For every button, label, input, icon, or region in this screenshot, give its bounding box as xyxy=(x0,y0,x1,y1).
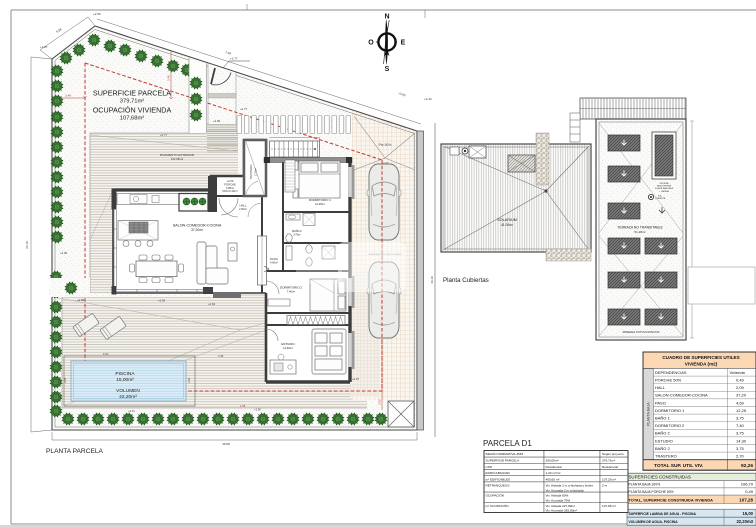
svg-text:7,40: 7,40 xyxy=(736,423,745,428)
svg-text:350,00m²: 350,00m² xyxy=(546,459,559,463)
svg-text:4.38: 4.38 xyxy=(218,354,224,358)
svg-text:BAÑO 2: BAÑO 2 xyxy=(655,431,670,436)
svg-text:N: N xyxy=(384,14,389,21)
svg-text:AEROTERMIA: AEROTERMIA xyxy=(657,185,671,188)
svg-text:+2.99: +2.99 xyxy=(213,119,221,123)
svg-text:CUADRO DE SUPERFICIES UTILES: CUADRO DE SUPERFICIES UTILES xyxy=(662,355,739,360)
svg-text:2 m: 2 m xyxy=(602,484,608,488)
svg-text:4.69m²: 4.69m² xyxy=(270,261,278,265)
svg-text:2.46: 2.46 xyxy=(166,75,170,81)
svg-text:DORMITORIO 1: DORMITORIO 1 xyxy=(309,198,331,202)
svg-text:+2.05: +2.05 xyxy=(60,251,68,255)
svg-text:+2.59: +2.59 xyxy=(227,179,234,183)
svg-text:Pte 50%: Pte 50% xyxy=(379,143,392,147)
svg-text:m² EDIFICABLES: m² EDIFICABLES xyxy=(486,477,511,481)
svg-text:12.25m²: 12.25m² xyxy=(315,202,325,206)
svg-text:+2.77: +2.77 xyxy=(240,107,248,111)
svg-text:16.10: 16.10 xyxy=(430,276,434,284)
svg-text:+2.77: +2.77 xyxy=(230,57,238,61)
svg-text:1,20 m²/m²: 1,20 m²/m² xyxy=(546,471,561,475)
svg-text:41.00m²: 41.00m² xyxy=(501,223,513,227)
svg-text:0,49: 0,49 xyxy=(736,378,745,383)
svg-text:2,09: 2,09 xyxy=(736,385,745,390)
svg-text:Según proyecto: Según proyecto xyxy=(602,452,624,456)
svg-text:B.A.: B.A. xyxy=(658,195,662,198)
svg-text:24.18: 24.18 xyxy=(25,241,29,249)
svg-text:3.00: 3.00 xyxy=(187,377,191,383)
svg-text:14,30: 14,30 xyxy=(736,438,747,443)
svg-text:TRASTERO: TRASTERO xyxy=(249,165,253,180)
svg-text:107,28: 107,28 xyxy=(739,498,753,503)
svg-text:2.09m²: 2.09m² xyxy=(239,207,247,211)
svg-text:50%=0.49m²: 50%=0.49m² xyxy=(222,189,237,193)
svg-text:3,75: 3,75 xyxy=(736,416,745,421)
svg-text:+2.67: +2.67 xyxy=(352,377,360,381)
svg-text:92,26: 92,26 xyxy=(741,463,753,469)
svg-text:PLANTA BAJA 100%: PLANTA BAJA 100% xyxy=(629,483,661,487)
svg-text:PARCELA D1: PARCELA D1 xyxy=(483,439,532,448)
svg-text:SALON-COMEDOR-COCINA: SALON-COMEDOR-COCINA xyxy=(655,393,708,398)
svg-text:2,70: 2,70 xyxy=(736,454,745,459)
svg-text:15,00m²: 15,00m² xyxy=(116,377,134,383)
svg-text:2.46: 2.46 xyxy=(65,94,71,98)
svg-text:TOTAL, SUPERFICIE CONSTRUIDA V: TOTAL, SUPERFICIE CONSTRUIDA VIVIENDA xyxy=(629,498,714,503)
svg-text:4,69: 4,69 xyxy=(736,400,745,405)
svg-text:DEPENDENCIAS: DEPENDENCIAS xyxy=(655,370,687,375)
svg-text:37,20m²: 37,20m² xyxy=(191,228,204,232)
svg-text:SOBRE BANCADA: SOBRE BANCADA xyxy=(655,187,674,190)
svg-text:22,20m3: 22,20m3 xyxy=(736,519,753,524)
svg-text:ESTUDIO: ESTUDIO xyxy=(281,342,295,346)
svg-text:BAÑO 2: BAÑO 2 xyxy=(655,446,670,451)
svg-text:TERRAZA NO TRANSITABLE: TERRAZA NO TRANSITABLE xyxy=(617,226,663,230)
svg-text:USO: USO xyxy=(486,465,493,469)
svg-text:PLANTA BAJA: PLANTA BAJA xyxy=(647,402,651,426)
svg-text:PLANTA BAJA PORCHE 50%: PLANTA BAJA PORCHE 50% xyxy=(629,490,674,494)
svg-text:3.75m²: 3.75m² xyxy=(293,233,301,236)
svg-text:VOLUMEN DE AGUA, PISCINA: VOLUMEN DE AGUA, PISCINA xyxy=(629,520,679,524)
svg-text:SUPERFICIES CONSTRUIDAS: SUPERFICIES CONSTRUIDAS xyxy=(629,475,692,480)
svg-text:0,49: 0,49 xyxy=(745,489,754,494)
svg-text:BAÑO 1: BAÑO 1 xyxy=(655,416,670,421)
svg-text:SEGÚN NORMATIVA-3653: SEGÚN NORMATIVA-3653 xyxy=(486,452,524,456)
svg-text:SALON-COMEDOR-COCINA: SALON-COMEDOR-COCINA xyxy=(173,224,222,228)
svg-text:379,71m²: 379,71m² xyxy=(602,459,615,463)
svg-text:36.88: 36.88 xyxy=(222,442,230,446)
svg-text:+2.77: +2.77 xyxy=(160,133,168,137)
svg-text:22,20m³: 22,20m³ xyxy=(119,394,137,400)
svg-text:Planta Cubiertas: Planta Cubiertas xyxy=(443,277,489,284)
svg-text:TRASTERO: TRASTERO xyxy=(655,454,677,459)
svg-text:+2.59: +2.59 xyxy=(158,299,166,303)
svg-text:Viv. Aislada 60%: Viv. Aislada 60% xyxy=(546,494,569,498)
svg-text:Viv. Acosada 2 m a fachada: Viv. Acosada 2 m a fachada xyxy=(546,488,584,492)
svg-text:VIVIENDA (m2): VIVIENDA (m2) xyxy=(685,362,718,367)
svg-text:107,28 m²: 107,28 m² xyxy=(602,477,616,481)
svg-text:O: O xyxy=(368,40,374,47)
svg-text:+2.58: +2.58 xyxy=(77,298,85,302)
svg-text:102.08m2: 102.08m2 xyxy=(171,157,184,161)
svg-text:12,25: 12,25 xyxy=(736,408,747,413)
svg-text:SUPERFICIE LAMINA DE AGUA - PI: SUPERFICIE LAMINA DE AGUA - PISCINA xyxy=(629,512,697,516)
svg-text:PANELES FOTOVOLTAICOS: PANELES FOTOVOLTAICOS xyxy=(623,330,660,334)
svg-text:EDIFICABILIDAD: EDIFICABILIDAD xyxy=(486,471,511,475)
svg-text:SUPERFICIE PARCELA: SUPERFICIE PARCELA xyxy=(93,89,171,98)
svg-text:Viv. Acosada 70%: Viv. Acosada 70% xyxy=(546,499,571,503)
svg-text:PORCHE 50%: PORCHE 50% xyxy=(655,378,682,383)
svg-text:+3.13: +3.13 xyxy=(424,97,432,101)
svg-text:379,71m²: 379,71m² xyxy=(120,99,145,105)
svg-text:3,75: 3,75 xyxy=(736,431,745,436)
svg-text:SISTEMA: SISTEMA xyxy=(659,182,669,185)
svg-text:+ TARIMA: + TARIMA xyxy=(659,190,669,193)
svg-text:15,00: 15,00 xyxy=(743,511,754,516)
svg-text:Viv. Aislada 2 m a fachada y: Viv. Aislada 2 m a fachada y lindes xyxy=(546,484,594,488)
svg-text:SOLARIUM: SOLARIUM xyxy=(497,218,517,222)
svg-text:PISCINA: PISCINA xyxy=(115,371,135,377)
svg-text:ESTUDIO: ESTUDIO xyxy=(655,438,673,443)
svg-text:405,60 m²: 405,60 m² xyxy=(546,477,560,481)
svg-text:37,20: 37,20 xyxy=(736,393,747,398)
svg-text:SUPERFICIE PARCELA: SUPERFICIE PARCELA xyxy=(486,459,521,463)
svg-text:OCUPACIÓN VIVIENDA: OCUPACIÓN VIVIENDA xyxy=(93,106,172,115)
svg-text:3.00: 3.00 xyxy=(63,377,67,383)
svg-text:2.70m²: 2.70m² xyxy=(255,168,258,176)
svg-text:+2.64: +2.64 xyxy=(208,302,216,306)
svg-text:DORMITORIO 2: DORMITORIO 2 xyxy=(280,286,302,290)
svg-text:+1.87: +1.87 xyxy=(40,45,48,49)
svg-text:RETRANQUEOS: RETRANQUEOS xyxy=(486,484,510,488)
svg-text:PASO: PASO xyxy=(655,400,666,405)
svg-text:PASO: PASO xyxy=(270,257,279,261)
svg-text:E: E xyxy=(401,40,406,47)
svg-text:S: S xyxy=(385,66,390,73)
svg-text:DORMITORIO 2: DORMITORIO 2 xyxy=(655,423,685,428)
svg-text:TOTAL SUP. UTIL VIV.: TOTAL SUP. UTIL VIV. xyxy=(654,463,703,469)
svg-text:+2.55: +2.55 xyxy=(93,12,101,16)
svg-text:14.30m²: 14.30m² xyxy=(283,346,293,350)
svg-text:107,68 m²: 107,68 m² xyxy=(602,504,616,508)
svg-text:Residencial: Residencial xyxy=(602,465,618,469)
svg-text:+2.01: +2.01 xyxy=(128,409,135,413)
svg-text:Viv. Aislada 227,80m²: Viv. Aislada 227,80m² xyxy=(546,504,576,508)
svg-text:2.58: 2.58 xyxy=(240,404,246,408)
svg-text:HALL: HALL xyxy=(655,385,666,390)
svg-text:PLANTA PARCELA: PLANTA PARCELA xyxy=(46,448,104,455)
svg-text:VOLUMEN: VOLUMEN xyxy=(116,388,140,394)
svg-text:HALL: HALL xyxy=(240,204,247,208)
svg-text:107,68m²: 107,68m² xyxy=(120,116,145,122)
svg-text:51.28m²: 51.28m² xyxy=(634,230,645,234)
svg-text:DORMITORIO 1: DORMITORIO 1 xyxy=(655,408,685,413)
svg-text:2.00: 2.00 xyxy=(378,399,382,405)
svg-text:Residencial: Residencial xyxy=(546,465,562,469)
svg-text:+2.58: +2.58 xyxy=(254,408,261,412)
svg-text:OCUPACIÓN: OCUPACIÓN xyxy=(486,493,505,498)
svg-text:3,75: 3,75 xyxy=(736,446,745,451)
svg-text:106,79: 106,79 xyxy=(741,482,754,487)
svg-text:m² OCUPACIÓN: m² OCUPACIÓN xyxy=(486,503,509,508)
svg-text:7.40m²: 7.40m² xyxy=(287,289,295,293)
svg-text:Vivienda: Vivienda xyxy=(730,370,746,375)
svg-text:6.00: 6.00 xyxy=(103,352,109,356)
svg-text:CUBIERTA: CUBIERTA xyxy=(655,197,666,200)
